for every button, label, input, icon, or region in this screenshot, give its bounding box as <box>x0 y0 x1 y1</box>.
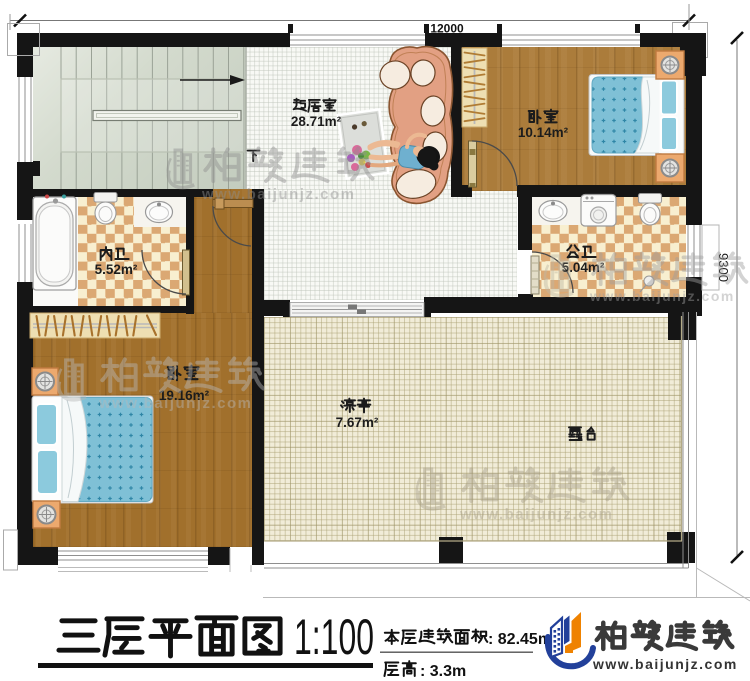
svg-text:1:100: 1:100 <box>294 609 374 665</box>
svg-text:28.71m²: 28.71m² <box>291 114 342 129</box>
svg-text:10.14m²: 10.14m² <box>518 125 569 140</box>
svg-text:www.baijunjz.com: www.baijunjz.com <box>98 395 252 412</box>
svg-text:: 3.3m: : 3.3m <box>420 663 466 680</box>
svg-text:www.baijunjz.com: www.baijunjz.com <box>592 656 738 672</box>
svg-text:www.baijunjz.com: www.baijunjz.com <box>201 186 355 203</box>
svg-text:www.baijunjz.com: www.baijunjz.com <box>589 288 735 304</box>
svg-text:7.67m²: 7.67m² <box>336 415 379 430</box>
svg-text:www.baijunjz.com: www.baijunjz.com <box>459 506 613 523</box>
svg-text:5.52m²: 5.52m² <box>95 262 138 277</box>
